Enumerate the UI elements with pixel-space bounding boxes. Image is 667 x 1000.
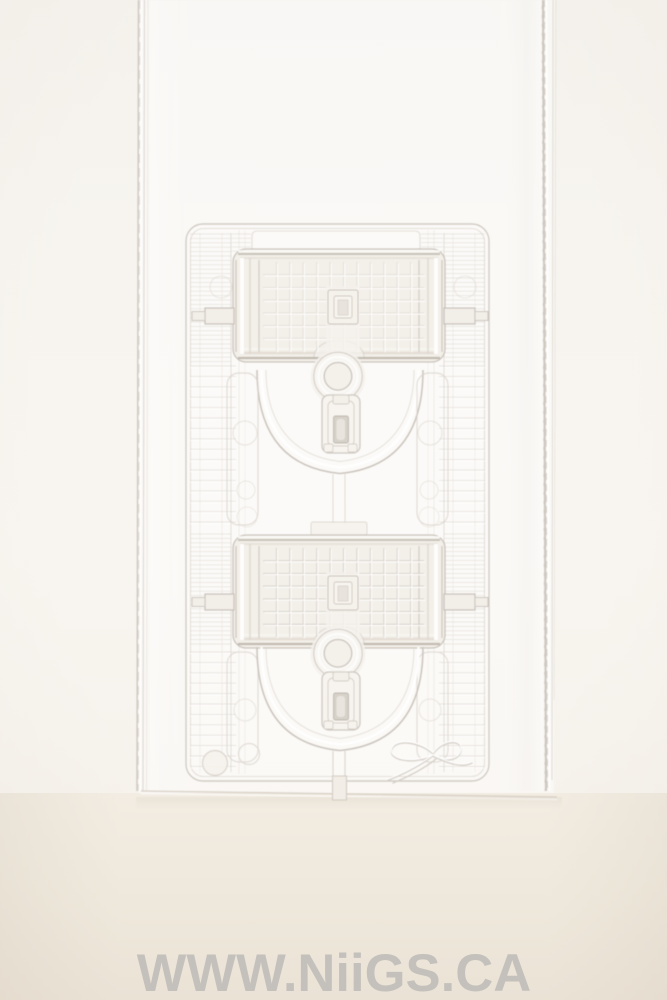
- svg-text:WWW.NiiGS.CA: WWW.NiiGS.CA: [137, 944, 531, 1000]
